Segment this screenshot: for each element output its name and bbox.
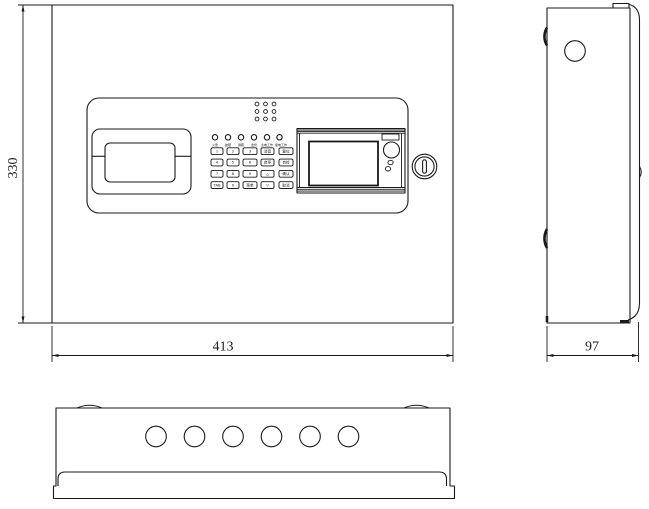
knockout-hole <box>223 426 244 447</box>
speaker-hole-icon <box>272 117 276 121</box>
dimension-arrow-icon <box>632 354 639 357</box>
indicator-dot-icon <box>388 160 393 164</box>
led-label: 屏蔽 <box>238 142 244 147</box>
printer <box>92 129 191 194</box>
dim-width-label: 413 <box>213 340 234 355</box>
speaker-grille <box>255 102 276 121</box>
knockout-hole <box>300 426 321 447</box>
printer-cover <box>105 143 175 182</box>
drawing-sheet: 火警 故障 屏蔽 监管 主电工作 备电工作 1 2 3 消音 复位 <box>0 0 649 509</box>
keypad-button-label: 启停 <box>264 160 272 165</box>
top-tab <box>613 4 629 9</box>
led-label: 故障 <box>225 142 231 147</box>
keypad: 1 2 3 消音 复位 4 5 6 启停 自检 7 8 9 △ <box>211 148 293 189</box>
speaker-hole-icon <box>255 117 259 121</box>
dimension-height: 330 <box>6 5 52 323</box>
jog-knob <box>384 142 400 158</box>
indicator-dot-icon <box>385 167 390 171</box>
front-bezel <box>87 98 408 213</box>
side-view <box>544 4 641 324</box>
keypad-button-label: 5 <box>232 161 234 165</box>
knockout-hole <box>261 426 282 447</box>
led-label: 主电工作 <box>261 142 273 147</box>
knockout-hole <box>146 426 167 447</box>
keypad-button-label: 消音 <box>264 148 272 153</box>
keypad-button-label: 4 <box>216 161 219 165</box>
led-label: 火警 <box>212 142 218 147</box>
status-led-icon <box>277 135 282 140</box>
status-led-icon <box>225 135 230 140</box>
dimension-depth: 97 <box>547 322 639 362</box>
dim-depth-label: 97 <box>585 340 599 355</box>
speaker-hole-icon <box>264 110 268 114</box>
dim-height-label: 330 <box>6 158 21 179</box>
front-view: 火警 故障 屏蔽 监管 主电工作 备电工作 1 2 3 消音 复位 <box>52 5 453 323</box>
speaker-hole-icon <box>255 102 259 106</box>
status-led-icon <box>251 135 256 140</box>
engineering-drawing: 火警 故障 屏蔽 监管 主电工作 备电工作 1 2 3 消音 复位 <box>0 0 649 509</box>
dimension-arrow-icon <box>547 354 554 357</box>
keypad-button-label: 菜单 <box>246 182 254 187</box>
led-label: 备电工作 <box>275 142 287 147</box>
display-module <box>297 129 405 194</box>
keypad-button-label: 确认 <box>282 171 290 176</box>
status-led-icon <box>264 135 269 140</box>
speaker-hole-icon <box>264 117 268 121</box>
function-slot <box>382 134 399 140</box>
keypad-button-label: ▽ <box>266 183 269 187</box>
printer-door <box>92 129 191 194</box>
keypad-button-label: 8 <box>232 172 235 176</box>
led-label: 监管 <box>251 142 257 147</box>
dimension-width: 413 <box>52 326 453 362</box>
dimension-arrow-icon <box>22 5 25 12</box>
keypad-button-label: 0 <box>232 183 235 187</box>
keypad-button-label: 1 <box>216 149 218 153</box>
keypad-button-label: △ <box>266 172 269 176</box>
base-plate-line <box>58 472 447 486</box>
dimension-arrow-icon <box>447 354 454 357</box>
keypad-button-label: 7 <box>216 172 218 176</box>
lock-outer-ring <box>412 154 437 179</box>
bottom-outline <box>54 408 455 499</box>
status-leds: 火警 故障 屏蔽 监管 主电工作 备电工作 <box>212 135 287 147</box>
speaker-hole-icon <box>264 102 268 106</box>
speaker-hole-icon <box>255 110 259 114</box>
display-screen <box>309 142 378 186</box>
key-lock <box>412 154 437 179</box>
keypad-button-label: 复位 <box>282 148 290 153</box>
cable-entry-hole <box>565 41 586 62</box>
dimension-arrow-icon <box>52 354 59 357</box>
side-body-outline <box>547 8 630 323</box>
keypad-button-label: 9 <box>249 172 252 176</box>
speaker-hole-icon <box>272 110 276 114</box>
speaker-hole-icon <box>272 102 276 106</box>
knockout-hole <box>338 426 359 447</box>
keypad-button-label: 自检 <box>282 160 290 165</box>
knockout-hole <box>184 426 205 447</box>
keypad-button-label: 6 <box>249 161 252 165</box>
status-led-icon <box>212 135 217 140</box>
bottom-view <box>54 405 455 498</box>
lock-slot-icon <box>423 160 427 173</box>
keypad-button-label: TAB <box>213 183 221 187</box>
status-led-icon <box>238 135 243 140</box>
keypad-button-label: 2 <box>232 149 234 153</box>
keypad-button-label: 3 <box>249 149 251 153</box>
dimension-arrow-icon <box>22 317 25 324</box>
keypad-button-label: 取消 <box>282 182 290 187</box>
